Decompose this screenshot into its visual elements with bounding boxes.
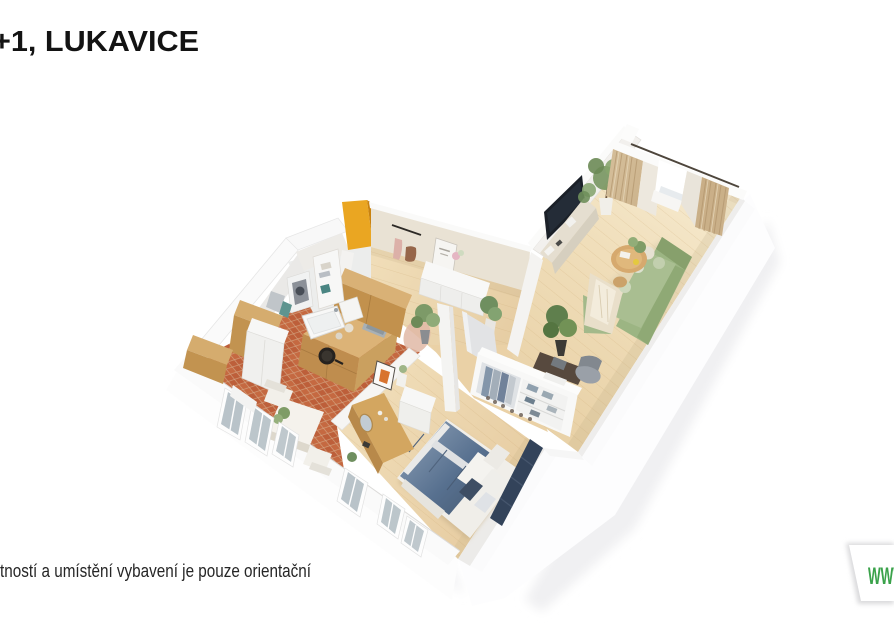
svg-text:WWW.: WWW. <box>868 563 894 590</box>
svg-text:tností a umístění vybavení je: tností a umístění vybavení je pouze orie… <box>0 561 311 581</box>
svg-text:+1, LUKAVICE: +1, LUKAVICE <box>0 26 199 58</box>
